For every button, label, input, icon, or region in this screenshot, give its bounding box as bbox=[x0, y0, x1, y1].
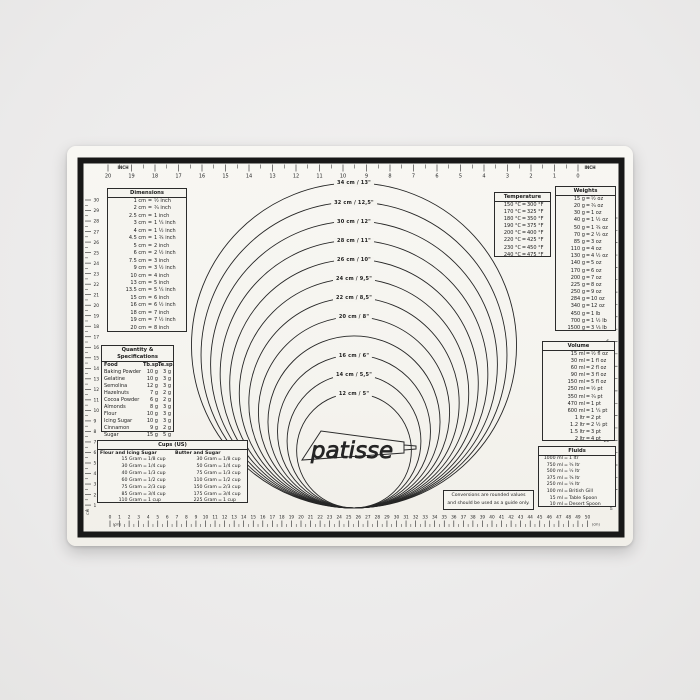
svg-text:10: 10 bbox=[340, 174, 346, 180]
group-title: Flour and Icing Sugar bbox=[100, 450, 170, 457]
table-row: Almonds8 g3 g bbox=[104, 404, 171, 411]
table-title: Fluids bbox=[539, 448, 615, 456]
table-row: 30 Gram=1/4 cup bbox=[100, 464, 170, 471]
table-row: 100 ml=British Gill bbox=[541, 489, 613, 496]
svg-text:44: 44 bbox=[527, 515, 533, 521]
svg-text:50: 50 bbox=[585, 515, 591, 521]
svg-text:26: 26 bbox=[356, 515, 362, 521]
svg-text:28: 28 bbox=[94, 219, 100, 225]
table-row: 60 Gram=1/2 cup bbox=[100, 478, 170, 485]
size-circle-20cm bbox=[258, 317, 449, 508]
svg-text:INCH: INCH bbox=[584, 165, 595, 170]
circle-label: 30 cm / 12" bbox=[334, 219, 374, 226]
table-row: 30 Gram=1/8 cup bbox=[175, 457, 245, 464]
svg-text:43: 43 bbox=[518, 515, 524, 521]
group-title: Butter and Sugar bbox=[175, 450, 245, 457]
table-row: 1 ltr=2 pt bbox=[545, 415, 612, 422]
svg-text:20: 20 bbox=[105, 174, 111, 180]
table-row: 150 Gram=2/3 cup bbox=[175, 485, 245, 492]
svg-text:34: 34 bbox=[432, 515, 438, 521]
svg-text:6: 6 bbox=[166, 515, 169, 521]
table-row: 470 ml=1 pt bbox=[545, 401, 612, 408]
svg-text:21: 21 bbox=[94, 292, 100, 298]
table-row: 350 ml=¾ pt bbox=[545, 394, 612, 401]
table-row: 4 cm=1 ½ inch bbox=[110, 228, 184, 235]
table-title: Volume bbox=[543, 343, 614, 351]
svg-text:0: 0 bbox=[576, 174, 579, 180]
svg-text:27: 27 bbox=[365, 515, 371, 521]
table-title: Weights bbox=[556, 188, 615, 196]
volume-table: Volume 15 ml=½ fl oz30 ml=1 fl oz60 ml=2… bbox=[542, 341, 615, 441]
svg-text:42: 42 bbox=[508, 515, 514, 521]
table-row: Cinnamon9 g2 g bbox=[104, 425, 171, 432]
table-row: Icing Sugar10 g3 g bbox=[104, 418, 171, 425]
table-row: 30 ml=1 fl oz bbox=[545, 358, 612, 365]
svg-text:14: 14 bbox=[246, 174, 252, 180]
svg-text:18: 18 bbox=[279, 515, 285, 521]
svg-text:6: 6 bbox=[435, 174, 438, 180]
table-row: Gelatine10 g3 g bbox=[104, 376, 171, 383]
table-row: 1 cm=½ inch bbox=[110, 198, 184, 205]
table-row: 15 ml=½ fl oz bbox=[545, 351, 612, 358]
svg-text:15: 15 bbox=[251, 515, 257, 521]
table-row: 20 g=¾ oz bbox=[558, 203, 613, 210]
table-row: 40 Gram=1/3 cup bbox=[100, 471, 170, 478]
table-row: 7.5 cm=3 inch bbox=[110, 258, 184, 265]
svg-text:8: 8 bbox=[94, 429, 97, 435]
svg-text:20: 20 bbox=[298, 515, 304, 521]
svg-text:29: 29 bbox=[94, 208, 100, 214]
size-circle-22cm bbox=[249, 298, 459, 508]
svg-text:1: 1 bbox=[94, 503, 97, 509]
svg-text:14: 14 bbox=[241, 515, 247, 521]
table-row: 1000 ml=1 ltr bbox=[541, 456, 613, 463]
table-row: 110 Gram=1/2 cup bbox=[175, 478, 245, 485]
column-header: Te.sp. bbox=[158, 362, 171, 369]
svg-text:22: 22 bbox=[94, 282, 100, 288]
svg-text:9: 9 bbox=[195, 515, 198, 521]
quantity-specifications-table: Quantity & Specifications Food Tb.sp. Te… bbox=[101, 345, 174, 432]
svg-text:23: 23 bbox=[327, 515, 333, 521]
svg-text:(cm): (cm) bbox=[592, 523, 600, 527]
butter-sugar-group: Butter and Sugar 30 Gram=1/8 cup50 Gram=… bbox=[175, 450, 245, 505]
svg-text:5: 5 bbox=[459, 174, 462, 180]
table-row: 50 g=1 ¾ oz bbox=[558, 225, 613, 232]
table-title: Dimensions bbox=[108, 190, 186, 198]
table-row: 40 g=1 ½ oz bbox=[558, 217, 613, 224]
svg-text:11: 11 bbox=[212, 515, 218, 521]
svg-text:40: 40 bbox=[489, 515, 495, 521]
table-row: 170 °C=325 °F bbox=[497, 209, 548, 216]
svg-text:30: 30 bbox=[94, 198, 100, 204]
svg-text:5: 5 bbox=[156, 515, 159, 521]
table-rows: Baking Powder10 g3 gGelatine10 g3 gSemol… bbox=[104, 369, 171, 439]
table-row: 1500 g=3 ⅓ lb bbox=[558, 325, 613, 332]
table-row: 2 ltr=4 pt bbox=[545, 436, 612, 443]
table-row: 85 g=3 oz bbox=[558, 239, 613, 246]
table-row: 15 Gram=1/8 cup bbox=[100, 457, 170, 464]
svg-text:12: 12 bbox=[293, 174, 299, 180]
table-rows: 1000 ml=1 ltr750 ml=¾ ltr500 ml=½ ltr375… bbox=[541, 456, 613, 509]
svg-text:38: 38 bbox=[470, 515, 476, 521]
table-rows: 1 cm=½ inch2 cm=¾ inch2.5 cm=1 inch3 cm=… bbox=[110, 198, 184, 332]
svg-text:31: 31 bbox=[403, 515, 409, 521]
table-row: 9 cm=3 ½ inch bbox=[110, 265, 184, 272]
svg-text:7: 7 bbox=[175, 515, 178, 521]
svg-text:CM: CM bbox=[85, 509, 90, 515]
svg-text:36: 36 bbox=[451, 515, 457, 521]
table-title: Quantity & Specifications bbox=[102, 347, 173, 362]
svg-text:(cm): (cm) bbox=[113, 523, 121, 527]
table-rows: 15 g=½ oz20 g=¾ oz30 g=1 oz40 g=1 ½ oz50… bbox=[558, 196, 613, 332]
size-circle-18cm bbox=[268, 336, 440, 508]
svg-text:19: 19 bbox=[289, 515, 295, 521]
table-row: 50 Gram=1/4 cup bbox=[175, 464, 245, 471]
svg-text:45: 45 bbox=[537, 515, 543, 521]
column-header: Tb.sp. bbox=[143, 362, 158, 369]
svg-text:18: 18 bbox=[152, 174, 158, 180]
table-row: 500 ml=½ ltr bbox=[541, 469, 613, 476]
svg-text:49: 49 bbox=[575, 515, 581, 521]
svg-text:3: 3 bbox=[506, 174, 509, 180]
circle-label: 22 cm / 8,5" bbox=[333, 295, 375, 302]
svg-text:12: 12 bbox=[94, 387, 100, 393]
circle-label: 34 cm / 13" bbox=[334, 180, 374, 187]
table-row: 2.5 cm=1 inch bbox=[110, 213, 184, 220]
brand-name: patisse bbox=[310, 438, 393, 464]
table-row: 1.2 ltr=2 ½ pt bbox=[545, 422, 612, 429]
svg-text:20: 20 bbox=[94, 303, 100, 309]
table-row: 170 g=6 oz bbox=[558, 268, 613, 275]
table-row: 230 °C=450 °F bbox=[497, 245, 548, 252]
table-row: 240 °C=475 °F bbox=[497, 252, 548, 259]
product-photo: 20191817161514131211109876543210INCHINCH… bbox=[0, 0, 700, 700]
svg-text:9: 9 bbox=[365, 174, 368, 180]
circle-label: 12 cm / 5" bbox=[336, 391, 372, 398]
svg-text:48: 48 bbox=[566, 515, 572, 521]
table-row: 60 ml=2 fl oz bbox=[545, 365, 612, 372]
svg-text:10: 10 bbox=[94, 408, 100, 414]
svg-text:25: 25 bbox=[346, 515, 352, 521]
svg-text:17: 17 bbox=[175, 174, 181, 180]
table-row: 180 °C=350 °F bbox=[497, 216, 548, 223]
table-row: 90 ml=3 fl oz bbox=[545, 372, 612, 379]
table-row: 110 Gram=1 cup bbox=[100, 498, 170, 505]
svg-text:16: 16 bbox=[94, 345, 100, 351]
table-row: 200 g=7 oz bbox=[558, 275, 613, 282]
svg-text:46: 46 bbox=[547, 515, 553, 521]
svg-text:1: 1 bbox=[553, 174, 556, 180]
svg-text:12: 12 bbox=[222, 515, 228, 521]
svg-text:47: 47 bbox=[556, 515, 562, 521]
svg-text:1: 1 bbox=[118, 515, 121, 521]
table-row: 700 g=1 ½ lb bbox=[558, 318, 613, 325]
svg-text:16: 16 bbox=[199, 174, 205, 180]
svg-text:17: 17 bbox=[270, 515, 276, 521]
svg-text:15: 15 bbox=[222, 174, 228, 180]
table-row: Flour10 g3 g bbox=[104, 411, 171, 418]
table-header-row: Food Tb.sp. Te.sp. bbox=[104, 362, 171, 369]
svg-text:4: 4 bbox=[482, 174, 485, 180]
table-row: 250 ml=½ pt bbox=[545, 386, 612, 393]
table-row: 450 g=1 lb bbox=[558, 311, 613, 318]
svg-text:32: 32 bbox=[413, 515, 419, 521]
table-row: Hazelnuts7 g2 g bbox=[104, 390, 171, 397]
note-line: and should be used as a guide only. bbox=[444, 500, 533, 508]
table-row: 190 °C=375 °F bbox=[497, 223, 548, 230]
table-row: 600 ml=1 ¼ pt bbox=[545, 408, 612, 415]
table-row: 3 cm=1 ¼ inch bbox=[110, 220, 184, 227]
table-row: 13.5 cm=5 ¼ inch bbox=[110, 287, 184, 294]
note-line: Conversions are rounded values bbox=[444, 492, 533, 500]
svg-text:22: 22 bbox=[317, 515, 323, 521]
svg-text:41: 41 bbox=[499, 515, 505, 521]
svg-text:4: 4 bbox=[147, 515, 150, 521]
table-row: Cocoa Powder6 g2 g bbox=[104, 397, 171, 404]
svg-text:13: 13 bbox=[269, 174, 275, 180]
dimensions-table: Dimensions 1 cm=½ inch2 cm=¾ inch2.5 cm=… bbox=[107, 188, 187, 332]
svg-text:8: 8 bbox=[185, 515, 188, 521]
svg-text:0: 0 bbox=[109, 515, 112, 521]
table-row: 340 g=12 oz bbox=[558, 303, 613, 310]
circle-label: 16 cm / 6" bbox=[336, 353, 372, 360]
svg-text:25: 25 bbox=[94, 250, 100, 256]
svg-text:10: 10 bbox=[203, 515, 209, 521]
table-row: 13 cm=5 inch bbox=[110, 280, 184, 287]
table-row: 10 cm=4 inch bbox=[110, 273, 184, 280]
table-row: 70 g=2 ½ oz bbox=[558, 232, 613, 239]
svg-text:23: 23 bbox=[94, 271, 100, 277]
svg-text:37: 37 bbox=[461, 515, 467, 521]
table-rows: 150 °C=300 °F170 °C=325 °F180 °C=350 °F1… bbox=[497, 202, 548, 259]
table-row: 140 g=5 oz bbox=[558, 260, 613, 267]
circle-label: 32 cm / 12,5" bbox=[331, 200, 377, 207]
svg-text:30: 30 bbox=[394, 515, 400, 521]
size-circle-30cm bbox=[211, 221, 498, 508]
table-row: 15 g=½ oz bbox=[558, 196, 613, 203]
flour-icing-sugar-group: Flour and Icing Sugar 15 Gram=1/8 cup30 … bbox=[100, 450, 170, 505]
weights-table: Weights 15 g=½ oz20 g=¾ oz30 g=1 oz40 g=… bbox=[555, 186, 616, 331]
svg-text:2: 2 bbox=[529, 174, 532, 180]
table-row: 4.5 cm=1 ¾ inch bbox=[110, 235, 184, 242]
circle-label: 14 cm / 5,5" bbox=[333, 372, 375, 379]
table-row: 6 cm=2 ½ inch bbox=[110, 250, 184, 257]
svg-text:3: 3 bbox=[137, 515, 140, 521]
table-row: 250 g=9 oz bbox=[558, 289, 613, 296]
svg-text:28: 28 bbox=[375, 515, 381, 521]
svg-text:13: 13 bbox=[231, 515, 237, 521]
table-row: 10 ml=Desert Spoon bbox=[541, 502, 613, 509]
svg-text:39: 39 bbox=[480, 515, 486, 521]
svg-text:24: 24 bbox=[336, 515, 342, 521]
svg-text:26: 26 bbox=[94, 240, 100, 246]
table-row: 20 cm=8 inch bbox=[110, 325, 184, 332]
column-header: Food bbox=[104, 362, 143, 369]
cups-table: Cups (US) Flour and Icing Sugar 15 Gram=… bbox=[97, 440, 248, 503]
svg-text:18: 18 bbox=[94, 324, 100, 330]
table-row: Semolina12 g3 g bbox=[104, 383, 171, 390]
svg-text:35: 35 bbox=[442, 515, 448, 521]
table-row: 150 °C=300 °F bbox=[497, 202, 548, 209]
table-row: 225 Gram=1 cup bbox=[175, 498, 245, 505]
circle-label: 20 cm / 8" bbox=[336, 314, 372, 321]
svg-text:14: 14 bbox=[94, 366, 100, 372]
circle-label: 28 cm / 11" bbox=[334, 238, 374, 245]
table-row: 16 cm=6 ½ inch bbox=[110, 302, 184, 309]
table-rows: 15 Gram=1/8 cup30 Gram=1/4 cup40 Gram=1/… bbox=[100, 457, 170, 505]
svg-text:7: 7 bbox=[412, 174, 415, 180]
table-rows: 15 ml=½ fl oz30 ml=1 fl oz60 ml=2 fl oz9… bbox=[545, 351, 612, 443]
svg-text:33: 33 bbox=[422, 515, 428, 521]
svg-text:21: 21 bbox=[308, 515, 314, 521]
svg-text:19: 19 bbox=[128, 174, 134, 180]
fluids-table: Fluids 1000 ml=1 ltr750 ml=¾ ltr500 ml=½… bbox=[538, 446, 616, 507]
svg-text:16: 16 bbox=[260, 515, 266, 521]
disclaimer-note: Conversions are rounded values and shoul… bbox=[443, 490, 534, 510]
table-row: 1.5 ltr=3 pt bbox=[545, 429, 612, 436]
table-row: 75 Gram=2/3 cup bbox=[100, 485, 170, 492]
table-row: 284 g=10 oz bbox=[558, 296, 613, 303]
svg-text:15: 15 bbox=[94, 356, 100, 362]
svg-text:17: 17 bbox=[94, 334, 100, 340]
svg-text:9: 9 bbox=[94, 419, 97, 425]
table-row: 2 cm=¾ inch bbox=[110, 205, 184, 212]
svg-text:11: 11 bbox=[94, 398, 100, 404]
svg-text:19: 19 bbox=[94, 313, 100, 319]
svg-text:27: 27 bbox=[94, 229, 100, 235]
svg-text:8: 8 bbox=[388, 174, 391, 180]
table-row: Baking Powder10 g3 g bbox=[104, 369, 171, 376]
temperature-table: Temperature 150 °C=300 °F170 °C=325 °F18… bbox=[494, 192, 551, 257]
table-row: 225 g=8 oz bbox=[558, 282, 613, 289]
cups-columns: Flour and Icing Sugar 15 Gram=1/8 cup30 … bbox=[100, 450, 245, 505]
svg-text:2: 2 bbox=[128, 515, 131, 521]
svg-text:11: 11 bbox=[316, 174, 322, 180]
svg-text:29: 29 bbox=[384, 515, 390, 521]
circle-label: 26 cm / 10" bbox=[334, 257, 374, 264]
table-row: 130 g=4 ½ oz bbox=[558, 253, 613, 260]
table-title: Cups (US) bbox=[98, 442, 247, 450]
table-title: Temperature bbox=[495, 194, 550, 202]
svg-text:13: 13 bbox=[94, 377, 100, 383]
circle-label: 24 cm / 9,5" bbox=[333, 276, 375, 283]
table-rows: 30 Gram=1/8 cup50 Gram=1/4 cup75 Gram=1/… bbox=[175, 457, 245, 505]
table-row: Sugar15 g5 g bbox=[104, 432, 171, 439]
table-row: 19 cm=7 ½ inch bbox=[110, 317, 184, 324]
svg-text:INCH: INCH bbox=[117, 165, 128, 170]
table-row: 75 Gram=1/3 cup bbox=[175, 471, 245, 478]
table-row: 250 ml=¼ ltr bbox=[541, 482, 613, 489]
table-row: 200 °C=400 °F bbox=[497, 230, 548, 237]
table-row: 220 °C=425 °F bbox=[497, 237, 548, 244]
brand-logo: patisse bbox=[302, 431, 416, 464]
svg-text:24: 24 bbox=[94, 261, 100, 267]
